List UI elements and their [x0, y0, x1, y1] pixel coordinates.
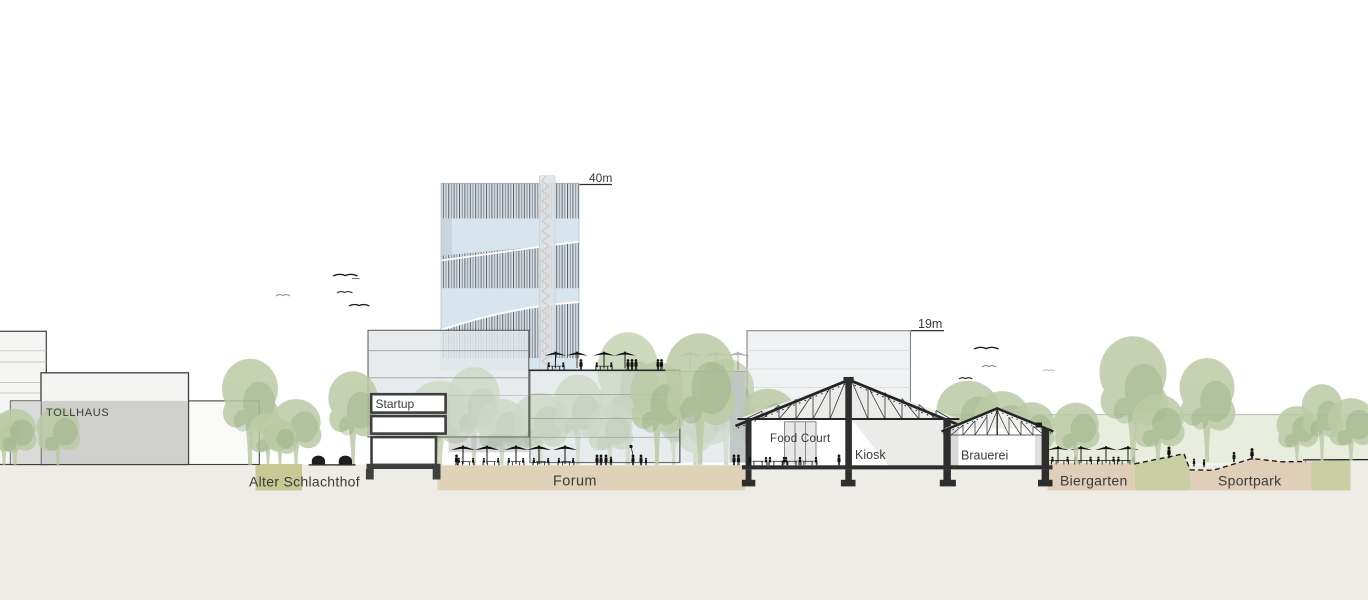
svg-text:Kiosk: Kiosk: [855, 448, 886, 462]
svg-text:Brauerei: Brauerei: [961, 449, 1008, 463]
svg-text:Biergarten: Biergarten: [1060, 473, 1128, 489]
svg-text:Forum: Forum: [553, 474, 597, 490]
svg-text:40m: 40m: [589, 171, 612, 185]
svg-text:Alter Schlachthof: Alter Schlachthof: [249, 474, 360, 490]
svg-text:19m: 19m: [918, 317, 942, 331]
svg-text:TOLLHAUS: TOLLHAUS: [46, 407, 109, 419]
svg-text:Sportpark: Sportpark: [1218, 473, 1282, 489]
svg-text:Startup: Startup: [376, 397, 415, 411]
svg-text:Food Court: Food Court: [770, 433, 831, 445]
